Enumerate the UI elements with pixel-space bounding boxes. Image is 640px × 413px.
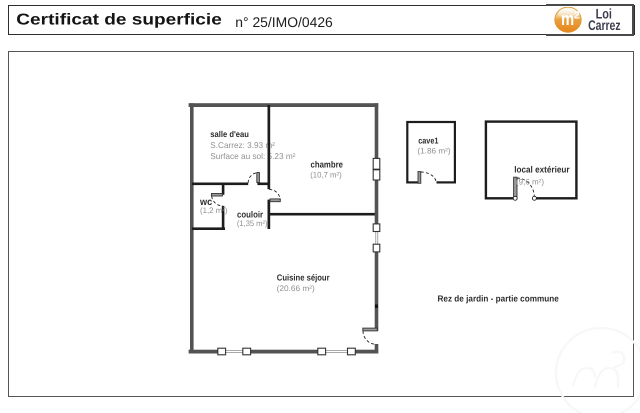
svg-text:chambre: chambre <box>311 159 344 169</box>
svg-text:(1.86 m²): (1.86 m²) <box>417 147 451 156</box>
svg-text:Rez de jardin - partie commune: Rez de jardin - partie commune <box>438 293 559 303</box>
svg-text:Certificat de superficie: Certificat de superficie <box>16 12 222 29</box>
svg-text:Cuisine séjour: Cuisine séjour <box>277 273 330 283</box>
svg-text:cave1: cave1 <box>418 135 439 145</box>
svg-text:(1,2 m²): (1,2 m²) <box>200 206 228 215</box>
svg-text:(1,35 m²): (1,35 m²) <box>237 219 268 228</box>
svg-text:(20.66 m²): (20.66 m²) <box>277 284 316 293</box>
svg-text:(10,7 m²): (10,7 m²) <box>310 170 342 179</box>
svg-text:salle d'eau: salle d'eau <box>210 129 249 139</box>
svg-text:S.Carrez: 3.93 m²: S.Carrez: 3.93 m² <box>210 140 275 150</box>
svg-text:Surface au sol: 5.23 m²: Surface au sol: 5.23 m² <box>210 151 295 161</box>
svg-text:couloir: couloir <box>237 210 264 220</box>
svg-text:Carrez: Carrez <box>588 17 621 33</box>
svg-text:(9,6 m²): (9,6 m²) <box>516 178 544 187</box>
svg-text:local extérieur: local extérieur <box>514 164 570 174</box>
svg-text:n° 25/IMO/0426: n° 25/IMO/0426 <box>235 14 333 30</box>
